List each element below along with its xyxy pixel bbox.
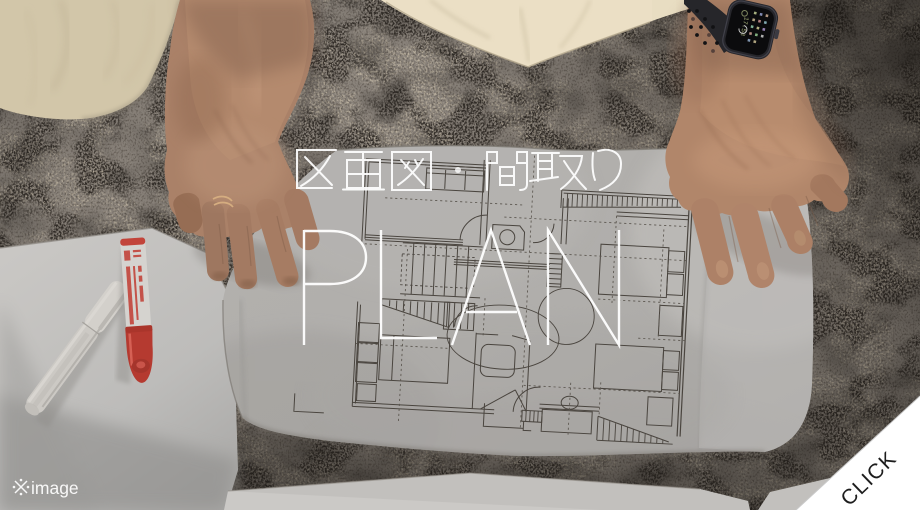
- svg-text:image: image: [31, 478, 79, 498]
